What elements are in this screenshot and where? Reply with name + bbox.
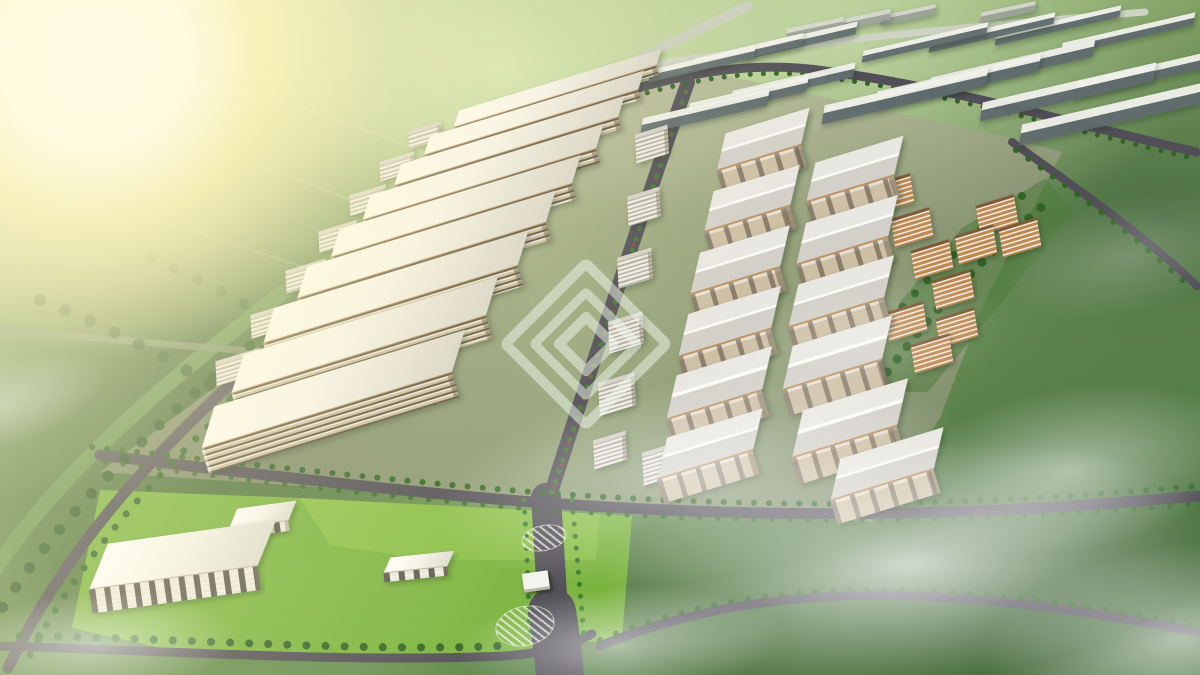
mist-cloud	[446, 573, 794, 675]
mist-cloud	[868, 353, 1200, 586]
mist-layer	[0, 0, 1200, 675]
aerial-industrial-park-render	[0, 0, 1200, 675]
mist-cloud	[0, 582, 248, 675]
mist-cloud	[690, 248, 1030, 442]
mist-cloud	[408, 335, 992, 621]
mist-cloud	[980, 163, 1200, 347]
mist-cloud	[579, 407, 1200, 675]
mist-cloud	[0, 325, 128, 491]
mist-cloud	[958, 512, 1200, 675]
